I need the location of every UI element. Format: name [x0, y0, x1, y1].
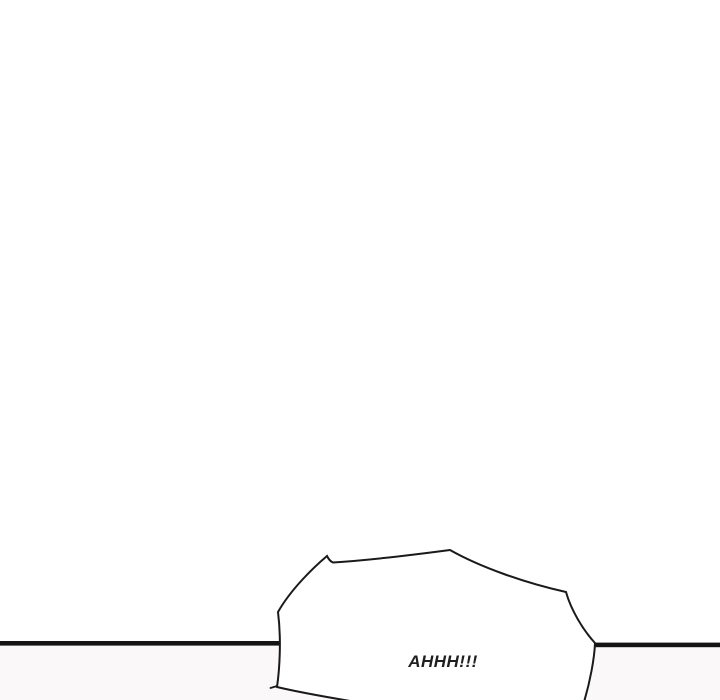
- panel-divider-left: [0, 641, 284, 646]
- shout-bubble-text: AHHH!!!: [405, 652, 481, 671]
- shout-bubble-outline: [277, 550, 595, 700]
- comic-panel-canvas: AHHH!!!: [0, 0, 720, 700]
- panel-artwork: [0, 0, 720, 700]
- panel-divider-right: [595, 643, 720, 648]
